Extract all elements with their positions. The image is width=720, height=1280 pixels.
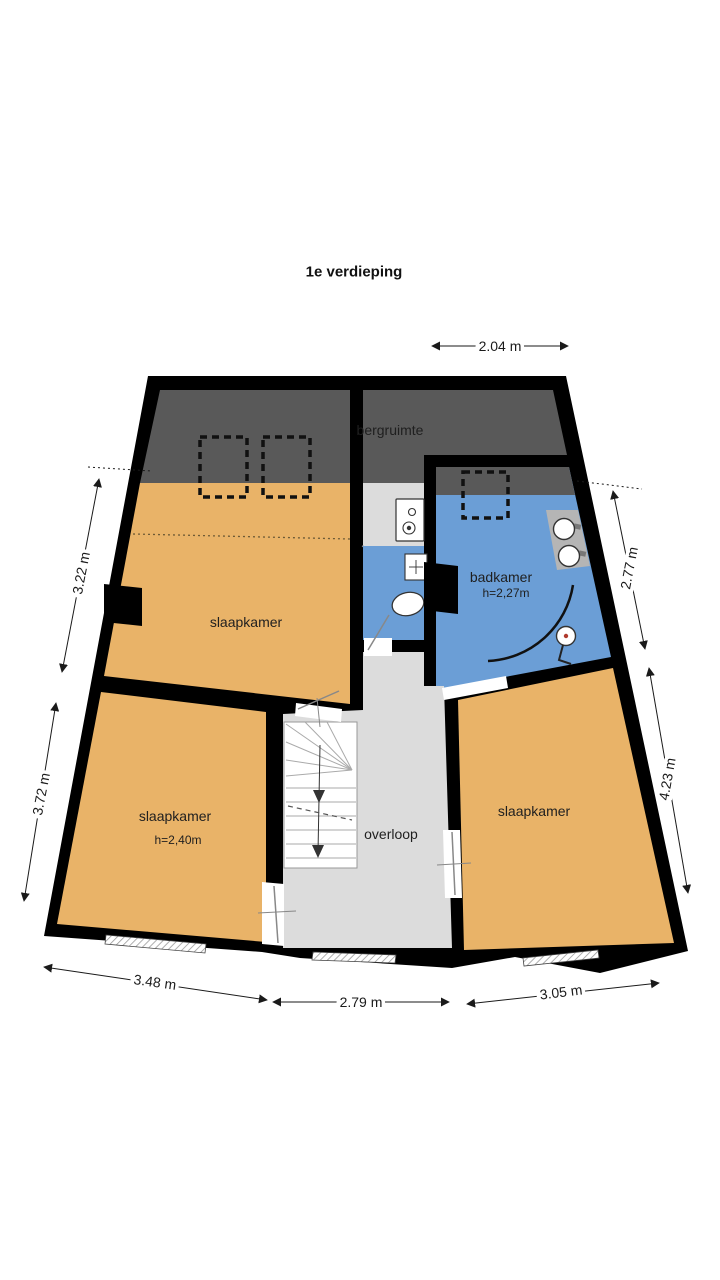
dimension-label: 3.48 m (133, 971, 178, 993)
chimney-block (104, 584, 142, 626)
room-slaapkamer-right: slaapkamer (458, 668, 674, 950)
room-label: bergruimte (357, 422, 424, 438)
room-label: overloop (364, 826, 418, 842)
room-label: badkamer (470, 569, 533, 585)
room-height-label: h=2,27m (482, 586, 529, 600)
staircase-icon (284, 722, 357, 868)
hand-basin-icon (405, 554, 427, 580)
dimension-label: 2.04 m (479, 338, 522, 354)
dimension-bottom-middle: 2.79 m (273, 994, 449, 1010)
dimension-label: 4.23 m (655, 757, 678, 802)
closet-area (362, 483, 424, 557)
floorplan-image: 1e verdieping slaapkamer bergruimte (0, 0, 720, 1280)
room-label: slaapkamer (498, 803, 571, 819)
sloped-ceiling-zone (140, 390, 350, 483)
page-title: 1e verdieping (306, 264, 403, 281)
room-label: slaapkamer (210, 614, 283, 630)
dimension-left-lower: 3.72 m (24, 703, 56, 901)
room-label: slaapkamer (139, 808, 212, 824)
floorplan-page: 1e verdieping slaapkamer bergruimte (0, 0, 720, 1280)
boiler-icon (396, 499, 424, 541)
dimension-label: 3.05 m (539, 981, 583, 1002)
dimension-label: 2.77 m (617, 545, 641, 590)
dimension-label: 3.22 m (69, 550, 93, 595)
toilet-room (363, 546, 427, 640)
chimney-block (424, 562, 458, 614)
dimension-top: 2.04 m (432, 338, 568, 354)
room-height-label: h=2,40m (154, 833, 201, 847)
dimension-label: 2.79 m (340, 994, 383, 1010)
dimension-bottom-left: 3.48 m (44, 967, 267, 1000)
dimension-label: 3.72 m (29, 771, 53, 816)
dimension-bottom-right: 3.05 m (467, 981, 659, 1004)
